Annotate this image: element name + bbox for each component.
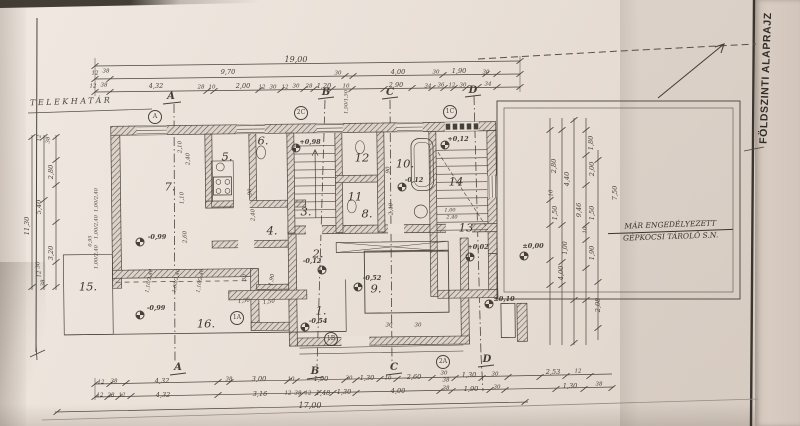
dim-label: 12 (37, 271, 43, 278)
dim-label: 12 (305, 391, 312, 397)
room-number: 5. (222, 151, 233, 163)
detail-marker: 2C (294, 106, 308, 120)
section-marker: B (322, 88, 330, 98)
dim-label: 38 (101, 83, 108, 89)
dim-label: 2,40 (389, 203, 395, 215)
section-marker: A (167, 92, 175, 102)
dim-label: 1,48 (316, 390, 330, 397)
dim-label: 4,32 (155, 378, 169, 385)
elevation-value: -0,99 (148, 234, 167, 241)
room-number: 9. (371, 283, 382, 295)
dim-label: 28 (306, 84, 313, 90)
scanned-floor-plan-sheet: 19,009,704,001,9030303012384,3228102,001… (0, 0, 800, 426)
dim-label: 12 (119, 393, 126, 399)
dim-label: 12 (285, 391, 292, 397)
dim-label: 30 (346, 376, 353, 382)
dim-label: 34 (485, 82, 492, 88)
dim-label: 38 (111, 379, 118, 385)
dim-label: 1,50 (263, 299, 276, 306)
dim-label: 30 (415, 323, 422, 329)
dim-label: 1,50 (589, 206, 596, 220)
dim-label: 30 (460, 83, 467, 89)
dim-label: 1,30 (360, 375, 374, 382)
dim-label: 1,00 (563, 241, 569, 254)
room-number: 16. (197, 318, 215, 330)
dim-label: 12 (90, 84, 97, 90)
elevation-value: ±0,00 (522, 243, 543, 250)
room-number: 11 (348, 191, 363, 203)
dim-label: 2,60 (183, 231, 189, 243)
room-number: 10. (396, 158, 414, 170)
dim-label: 4,32 (149, 83, 163, 90)
dim-label: 9,46 (576, 203, 583, 217)
dim-label: 4,00 (391, 388, 405, 395)
dim-label: 28 (198, 85, 205, 91)
dim-label: 4,00 (558, 266, 565, 280)
dim-label: 1,90 (269, 273, 277, 286)
room-number: 4. (267, 225, 278, 237)
dim-label: 1,80 (588, 136, 595, 150)
dim-label: 3,20 (48, 246, 55, 260)
dim-label: 10 (583, 227, 589, 234)
elevation-marker-icon (136, 238, 145, 247)
dim-label: 1,00/2,40 (172, 269, 181, 293)
dim-label: 30 (441, 371, 448, 377)
room-number: 15. (79, 281, 97, 293)
dim-label: 1,90 (452, 68, 466, 75)
dim-label: 2,08 (595, 298, 602, 312)
dim-label: 4,00 (391, 69, 405, 76)
dim-label: 2,10 (178, 141, 184, 153)
dim-label: 2,40 (446, 216, 457, 221)
dim-label: 90 (386, 167, 392, 174)
section-marker: D (469, 86, 478, 96)
section-marker: C (390, 363, 398, 373)
dim-label: 2,53 (546, 369, 560, 376)
dim-label: 38 (443, 386, 450, 392)
dim-label: 1,50 (238, 298, 251, 305)
dim-label: 1,90 (589, 246, 596, 260)
elevation-marker-icon (520, 252, 529, 261)
dim-label: 36 (438, 83, 445, 89)
dim-label: 2,40 (186, 153, 192, 165)
dim-label: 4,40 (564, 172, 571, 186)
dim-label: 5,40 (36, 200, 43, 214)
elevation-marker-icon (136, 311, 145, 320)
dim-label: 38 (295, 391, 302, 397)
dim-label: 1,30 (563, 383, 577, 390)
room-number: 6. (258, 135, 269, 147)
detail-marker: A (148, 110, 162, 124)
dim-label: 38 (596, 382, 603, 388)
dim-label: 12 (575, 369, 582, 375)
elevation-value: -0,54 (309, 318, 328, 325)
section-marker: B (311, 367, 319, 377)
dim-label: 12 (98, 380, 105, 386)
room-number: 14 (449, 176, 464, 188)
elevation-value: -0,12 (303, 258, 322, 265)
dim-label: 10 (385, 376, 392, 382)
dim-label: 3,00 (252, 376, 266, 383)
section-marker: A (174, 363, 182, 373)
dim-label: 2,00 (236, 83, 250, 90)
dim-label: 1,90 (464, 386, 478, 393)
dim-label: 1,00/2,40 (95, 188, 100, 212)
dim-label: 1,30 (337, 389, 351, 396)
dim-label: 1,10 (180, 192, 186, 204)
elevation-marker-icon (466, 253, 475, 262)
dim-label: 1,30 (462, 372, 476, 379)
elevation-value: +0,12 (447, 136, 468, 143)
room-number: 12 (355, 152, 370, 164)
dim-label: 1,10/2,40 (145, 269, 154, 293)
dim-label: 38 (46, 137, 52, 144)
dim-label: 2,80 (551, 159, 558, 173)
dim-label: 7,50 (612, 186, 619, 200)
dim-label: 28 (108, 393, 115, 399)
dim-label: 10 (288, 377, 295, 383)
dim-label: 3,16 (253, 391, 267, 398)
dim-label: 34 (425, 84, 432, 90)
elevation-marker-icon (398, 183, 407, 192)
dim-label: 30 (36, 262, 42, 269)
dim-label: 12 (282, 85, 289, 91)
dim-label: 2,40 (251, 209, 257, 221)
dim-label: 38 (103, 69, 110, 75)
elevation-marker-icon (441, 141, 450, 150)
elevation-marker-icon (301, 323, 310, 332)
detail-marker: 2A (436, 355, 450, 369)
elevation-value: -0,52 (363, 275, 382, 282)
dim-label: 12 (37, 135, 43, 142)
detail-marker: 1C (443, 105, 457, 119)
dim-label: 1,00/2,40 (95, 215, 100, 239)
elevation-value: ±0,10 (493, 296, 514, 303)
elevation-marker-icon (354, 283, 363, 292)
dim-label: 19,00 (285, 56, 308, 64)
dim-label: 2,80 (48, 165, 55, 179)
elevation-marker-icon (318, 266, 327, 275)
dim-label: 1,50/1,50 (345, 90, 350, 114)
elevation-value: -0,99 (147, 305, 166, 312)
dim-label: 30 (494, 385, 501, 391)
section-marker: D (483, 355, 492, 365)
dim-label: 30 (386, 323, 393, 329)
annotation-layer: 19,009,704,001,9030303012384,3228102,001… (0, 0, 800, 426)
elevation-value: -0,12 (405, 177, 424, 184)
dim-label: 11,30 (24, 217, 31, 236)
dim-label: 30 (243, 274, 250, 282)
dim-label: 30 (492, 372, 499, 378)
dim-label: 1,00/2,40 (95, 245, 100, 269)
dim-label: 12 (97, 393, 104, 399)
detail-marker: 1B (324, 332, 338, 346)
elevation-marker-icon (485, 300, 494, 309)
room-number: 8. (362, 208, 373, 220)
dim-label: 12 (449, 83, 456, 89)
dim-label: 1,00 (444, 209, 455, 214)
dim-label: 90 (248, 189, 254, 196)
dim-label: 1,10/2,40 (196, 269, 205, 293)
dim-label: 10 (549, 190, 555, 197)
dim-label: 30 (335, 71, 342, 77)
dim-label: 38 (41, 280, 47, 287)
dim-label: 38 (443, 378, 450, 384)
elevation-value: +0,02 (467, 244, 488, 251)
detail-marker: 1A (230, 311, 244, 325)
dim-label: 30 (270, 85, 277, 91)
dim-label: 30 (293, 84, 300, 90)
garage-note: MÁR ENGEDÉLYEZETT GÉPKOCSI TÁROLÓ S.N. (608, 218, 734, 245)
dim-label: 17,00 (299, 402, 322, 410)
dim-label: 30 (483, 70, 490, 76)
dim-label: 10 (209, 85, 216, 91)
room-number: 13 (459, 222, 474, 234)
room-number: 1. (316, 305, 327, 317)
dim-label: 30 (433, 70, 440, 76)
dim-label: 2,60 (407, 374, 421, 381)
elevation-value: +0,98 (299, 139, 320, 146)
dim-label: 38 (226, 377, 233, 383)
dim-label: 1,50 (552, 206, 559, 220)
room-number: 7. (165, 181, 176, 193)
section-marker: C (386, 88, 394, 98)
dim-label: 9,70 (221, 69, 235, 76)
dim-label: 12 (259, 85, 266, 91)
room-number: 3. (301, 206, 312, 218)
dim-label: 4,32 (156, 392, 170, 399)
dim-label: 10 (343, 84, 350, 90)
dim-label: 12 (92, 71, 99, 77)
dim-label: 2,00 (589, 162, 596, 176)
elevation-marker-icon (292, 144, 301, 153)
